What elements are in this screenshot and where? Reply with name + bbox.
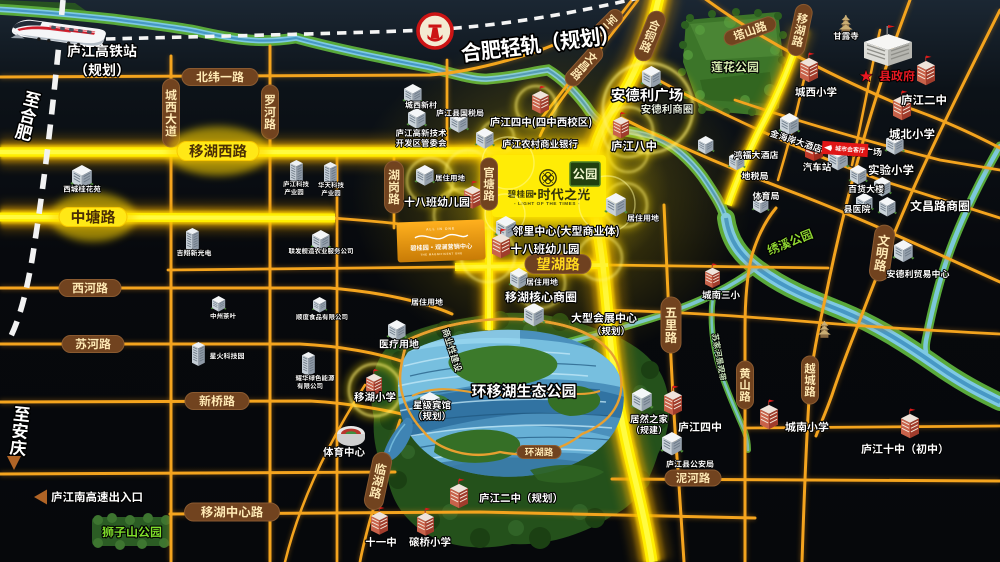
svg-text:- LIGHT OF THE TIMES -: - LIGHT OF THE TIMES -: [514, 201, 580, 206]
